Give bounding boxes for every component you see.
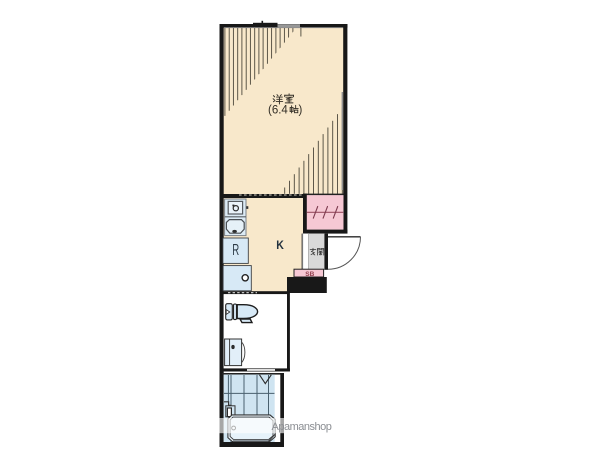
- svg-text:(6.4: (6.4: [268, 105, 288, 117]
- svg-text:R: R: [232, 240, 239, 258]
- svg-text:): ): [299, 105, 303, 117]
- svg-text:Apamanshop: Apamanshop: [272, 421, 332, 433]
- svg-text:K: K: [276, 240, 284, 253]
